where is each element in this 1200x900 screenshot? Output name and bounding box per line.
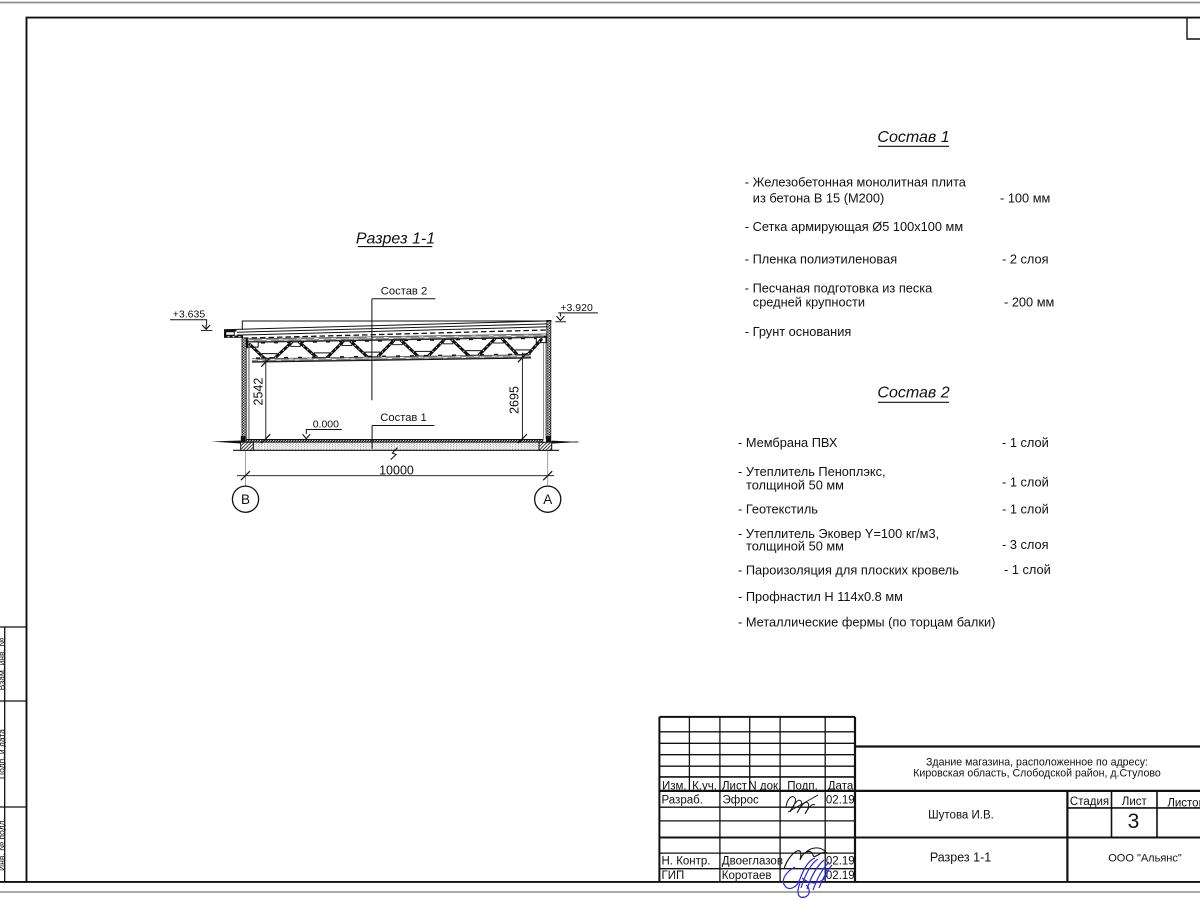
svg-text:N док.: N док. xyxy=(748,780,781,792)
svg-text:02.19: 02.19 xyxy=(826,870,855,882)
svg-text:- 100 мм: - 100 мм xyxy=(1000,191,1050,206)
svg-text:- 3 слоя: - 3 слоя xyxy=(1002,537,1049,552)
svg-text:10000: 10000 xyxy=(379,463,414,477)
svg-text:2542: 2542 xyxy=(251,378,265,406)
svg-text:К.уч.: К.уч. xyxy=(692,780,717,792)
svg-text:2695: 2695 xyxy=(508,386,522,414)
svg-text:- Профнастил Н 114х0.8 мм: - Профнастил Н 114х0.8 мм xyxy=(738,589,903,604)
svg-text:Стадия: Стадия xyxy=(1070,796,1109,808)
svg-text:- Мембрана ПВХ: - Мембрана ПВХ xyxy=(738,435,838,450)
svg-text:Состав 2: Состав 2 xyxy=(381,285,427,297)
svg-text:- Грунт основания: - Грунт основания xyxy=(745,324,852,339)
svg-text:Коротаев: Коротаев xyxy=(722,870,772,882)
svg-text:3: 3 xyxy=(1128,810,1140,833)
svg-text:- 1 слой: - 1 слой xyxy=(1002,474,1049,489)
svg-text:02.19: 02.19 xyxy=(826,855,855,867)
svg-text:В: В xyxy=(241,492,250,507)
svg-text:А: А xyxy=(543,492,552,507)
svg-text:Н. Контр.: Н. Контр. xyxy=(662,855,711,867)
svg-text:- Пленка полиэтиленовая: - Пленка полиэтиленовая xyxy=(745,252,897,267)
svg-text:Разраб.: Разраб. xyxy=(662,794,703,806)
svg-text:+3.920: +3.920 xyxy=(560,302,593,314)
svg-text:толщиной 50 мм: толщиной 50 мм xyxy=(746,478,844,493)
svg-text:- 2 слоя: - 2 слоя xyxy=(1002,252,1049,267)
svg-text:Кировская область, Слободской: Кировская область, Слободской район, д.С… xyxy=(913,767,1161,779)
svg-text:средней крупности: средней крупности xyxy=(753,295,865,310)
svg-text:- Железобетонная монолитная п: - Железобетонная монолитная плита xyxy=(745,175,967,190)
svg-text:ГИП: ГИП xyxy=(662,870,685,882)
svg-text:Изм.: Изм. xyxy=(662,780,687,792)
svg-text:Разрез 1-1: Разрез 1-1 xyxy=(930,850,991,864)
svg-text:из бетона В 15 (М200): из бетона В 15 (М200) xyxy=(753,191,884,206)
svg-text:- Металлические фермы (по торц: - Металлические фермы (по торцам балки) xyxy=(738,615,995,630)
svg-text:0.000: 0.000 xyxy=(313,418,339,430)
svg-text:- 200 мм: - 200 мм xyxy=(1004,295,1054,310)
svg-text:- 1 слой: - 1 слой xyxy=(1002,435,1049,450)
svg-text:Дата: Дата xyxy=(828,780,854,792)
svg-text:- Песчаная подготовка из песка: - Песчаная подготовка из песка xyxy=(745,280,933,295)
svg-text:толщиной 50 мм: толщиной 50 мм xyxy=(746,538,844,553)
svg-text:02.19: 02.19 xyxy=(826,794,855,806)
svg-text:- Сетка армирующая Ø5 100х100: - Сетка армирующая Ø5 100х100 мм xyxy=(745,219,963,234)
svg-text:- 1 слой: - 1 слой xyxy=(1004,562,1051,577)
svg-text:Листов: Листов xyxy=(1167,797,1200,809)
svg-text:Шутова И.В.: Шутова И.В. xyxy=(928,810,994,822)
svg-text:Подп.: Подп. xyxy=(787,780,818,792)
svg-text:Подп. и дата: Подп. и дата xyxy=(0,729,7,779)
svg-text:ООО "Альянс": ООО "Альянс" xyxy=(1108,852,1182,864)
svg-text:Эфрос: Эфрос xyxy=(723,794,760,806)
svg-text:Взам. инв. №: Взам. инв. № xyxy=(0,638,7,691)
svg-text:Состав 1: Состав 1 xyxy=(380,412,426,424)
svg-text:Состав 2: Состав 2 xyxy=(877,385,949,402)
svg-text:Двоеглазов: Двоеглазов xyxy=(722,855,783,867)
svg-text:- Геотекстиль: - Геотекстиль xyxy=(738,501,818,516)
svg-text:- Пароизоляция для плоских кро: - Пароизоляция для плоских кровель xyxy=(738,563,959,578)
svg-text:Лист: Лист xyxy=(1122,796,1148,808)
svg-text:- Утеплитель Пеноплэкс,: - Утеплитель Пеноплэкс, xyxy=(738,464,886,479)
svg-text:Состав 1: Состав 1 xyxy=(877,129,949,146)
svg-text:+3.635: +3.635 xyxy=(173,308,206,320)
svg-text:- 1 слой: - 1 слой xyxy=(1002,501,1049,516)
svg-text:Инв. № подл.: Инв. № подл. xyxy=(0,818,7,871)
svg-text:Лист: Лист xyxy=(722,780,748,792)
svg-text:Разрез 1-1: Разрез 1-1 xyxy=(356,231,435,248)
